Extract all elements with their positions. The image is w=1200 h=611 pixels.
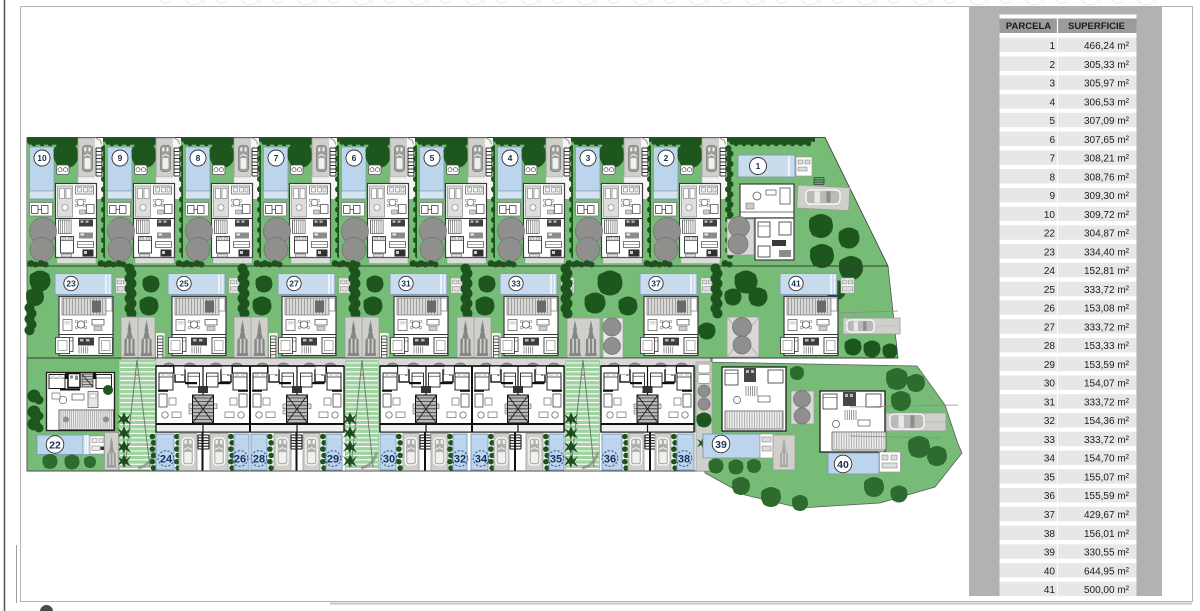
svg-text:334,40 m²: 334,40 m²: [1084, 247, 1130, 258]
svg-text:8: 8: [196, 153, 201, 163]
svg-text:41: 41: [1044, 585, 1056, 596]
svg-text:1: 1: [1049, 41, 1055, 52]
svg-text:41: 41: [791, 279, 801, 289]
svg-text:307,09 m²: 307,09 m²: [1084, 116, 1130, 127]
svg-text:3: 3: [1049, 79, 1055, 90]
svg-text:33: 33: [511, 279, 521, 289]
svg-text:6: 6: [1049, 135, 1055, 146]
svg-text:155,59 m²: 155,59 m²: [1084, 491, 1130, 502]
svg-text:333,72 m²: 333,72 m²: [1084, 397, 1130, 408]
svg-text:27: 27: [1044, 322, 1056, 333]
svg-text:156,01 m²: 156,01 m²: [1084, 529, 1130, 540]
svg-text:33: 33: [1044, 435, 1056, 446]
svg-text:29: 29: [1044, 360, 1056, 371]
svg-text:306,53 m²: 306,53 m²: [1084, 97, 1130, 108]
svg-text:23: 23: [66, 279, 76, 289]
svg-text:34: 34: [1044, 454, 1056, 465]
svg-text:155,07 m²: 155,07 m²: [1084, 473, 1130, 484]
svg-text:24: 24: [160, 453, 173, 465]
svg-text:7: 7: [274, 153, 279, 163]
svg-text:153,59 m²: 153,59 m²: [1084, 360, 1130, 371]
svg-text:8: 8: [1049, 172, 1055, 183]
svg-text:37: 37: [651, 279, 661, 289]
svg-text:308,21 m²: 308,21 m²: [1084, 154, 1130, 165]
svg-text:SUPERFICIE: SUPERFICIE: [1068, 21, 1125, 32]
svg-text:36: 36: [604, 453, 616, 465]
svg-text:429,67 m²: 429,67 m²: [1084, 510, 1130, 521]
svg-text:304,87 m²: 304,87 m²: [1084, 229, 1130, 240]
svg-text:5: 5: [430, 153, 435, 163]
svg-text:6: 6: [352, 153, 357, 163]
svg-text:35: 35: [1044, 473, 1056, 484]
svg-text:154,70 m²: 154,70 m²: [1084, 454, 1130, 465]
svg-text:153,33 m²: 153,33 m²: [1084, 341, 1130, 352]
svg-text:330,55 m²: 330,55 m²: [1084, 548, 1130, 559]
svg-text:38: 38: [1044, 529, 1056, 540]
svg-text:35: 35: [550, 453, 562, 465]
svg-text:154,36 m²: 154,36 m²: [1084, 416, 1130, 427]
svg-text:32: 32: [1044, 416, 1056, 427]
svg-text:32: 32: [454, 453, 466, 465]
svg-text:309,30 m²: 309,30 m²: [1084, 191, 1130, 202]
svg-text:9: 9: [1049, 191, 1055, 202]
svg-text:333,72 m²: 333,72 m²: [1084, 435, 1130, 446]
svg-text:28: 28: [253, 453, 265, 465]
svg-text:30: 30: [1044, 379, 1056, 390]
svg-text:153,08 m²: 153,08 m²: [1084, 304, 1130, 315]
svg-text:27: 27: [289, 279, 299, 289]
svg-text:38: 38: [678, 453, 690, 465]
svg-text:30: 30: [383, 453, 395, 465]
svg-text:25: 25: [179, 279, 189, 289]
svg-text:40: 40: [1044, 566, 1056, 577]
svg-text:2: 2: [1049, 60, 1055, 71]
svg-text:25: 25: [1044, 285, 1056, 296]
svg-text:22: 22: [1044, 229, 1056, 240]
svg-text:305,97 m²: 305,97 m²: [1084, 79, 1130, 90]
svg-text:24: 24: [1044, 266, 1056, 277]
svg-text:36: 36: [1044, 491, 1056, 502]
svg-text:39: 39: [1044, 548, 1056, 559]
svg-text:10: 10: [1044, 210, 1056, 221]
svg-text:PARCELA: PARCELA: [1006, 21, 1051, 32]
svg-text:22: 22: [49, 439, 61, 451]
svg-text:23: 23: [1044, 247, 1056, 258]
svg-text:466,24 m²: 466,24 m²: [1084, 41, 1130, 52]
svg-text:40: 40: [837, 459, 849, 471]
svg-text:305,33 m²: 305,33 m²: [1084, 60, 1130, 71]
svg-text:9: 9: [118, 153, 123, 163]
svg-text:333,72 m²: 333,72 m²: [1084, 285, 1130, 296]
svg-text:31: 31: [401, 279, 411, 289]
svg-text:154,07 m²: 154,07 m²: [1084, 379, 1130, 390]
svg-text:152,81 m²: 152,81 m²: [1084, 266, 1130, 277]
svg-text:1: 1: [756, 161, 761, 171]
svg-text:39: 39: [715, 439, 727, 451]
svg-text:309,72 m²: 309,72 m²: [1084, 210, 1130, 221]
svg-text:644,95 m²: 644,95 m²: [1084, 566, 1130, 577]
svg-text:308,76 m²: 308,76 m²: [1084, 172, 1130, 183]
svg-text:29: 29: [327, 453, 339, 465]
svg-text:4: 4: [1049, 97, 1055, 108]
svg-text:4: 4: [508, 153, 513, 163]
svg-text:26: 26: [1044, 304, 1056, 315]
svg-text:500,00 m²: 500,00 m²: [1084, 585, 1130, 596]
svg-text:26: 26: [234, 453, 246, 465]
svg-text:28: 28: [1044, 341, 1056, 352]
svg-text:31: 31: [1044, 397, 1056, 408]
svg-text:7: 7: [1049, 154, 1055, 165]
svg-text:333,72 m²: 333,72 m²: [1084, 322, 1130, 333]
svg-text:3: 3: [586, 153, 591, 163]
svg-text:5: 5: [1049, 116, 1055, 127]
svg-text:37: 37: [1044, 510, 1056, 521]
svg-text:10: 10: [37, 153, 47, 163]
svg-text:2: 2: [664, 153, 669, 163]
svg-text:34: 34: [475, 453, 488, 465]
svg-text:307,65 m²: 307,65 m²: [1084, 135, 1130, 146]
